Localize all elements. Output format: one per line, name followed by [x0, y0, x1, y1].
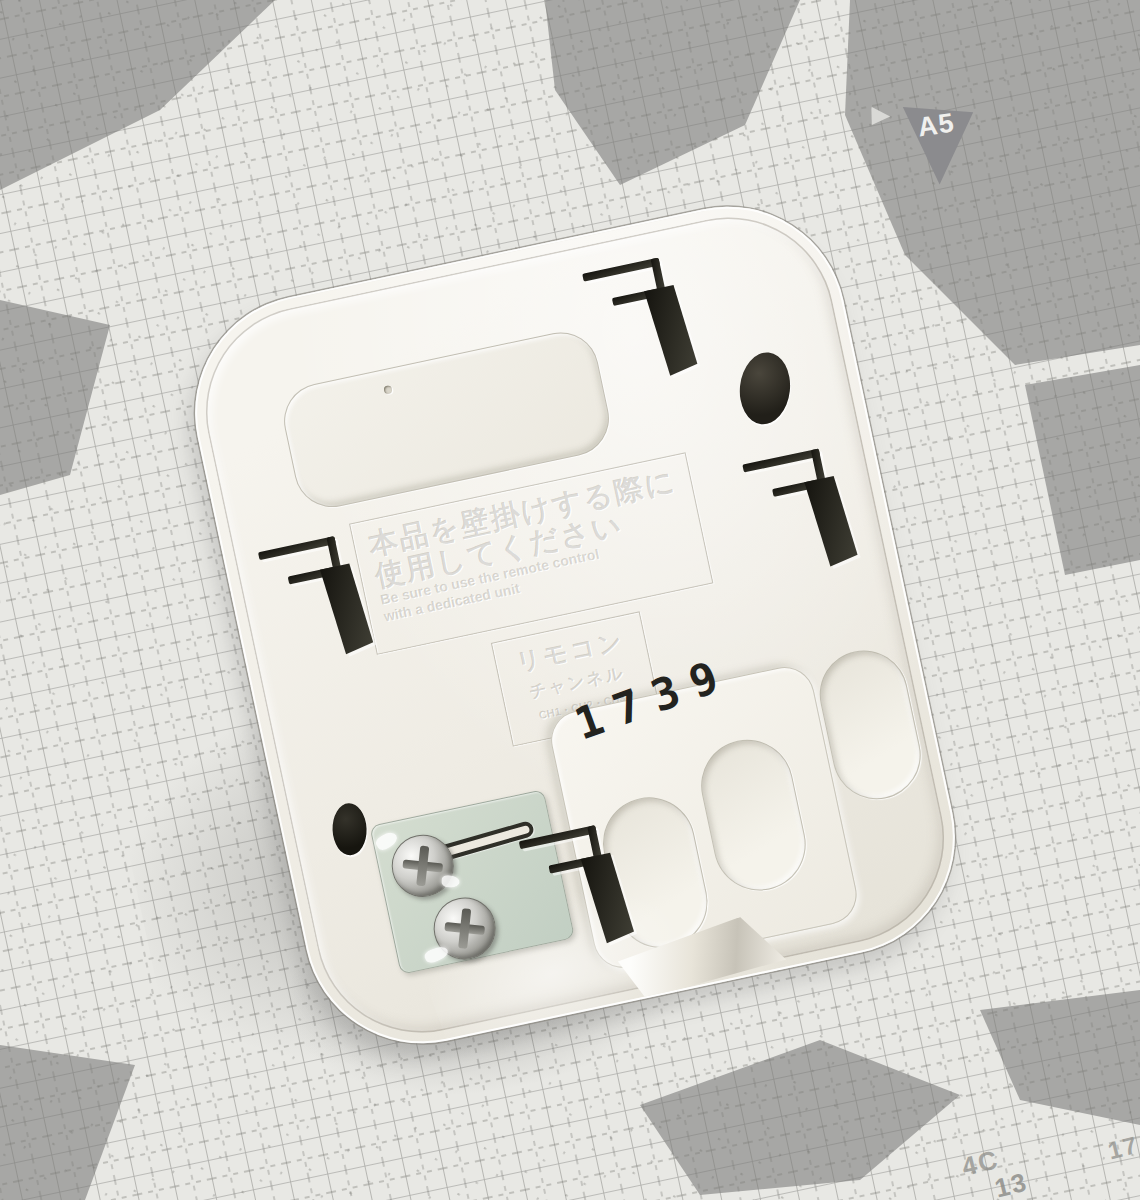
oval-hole-top-right — [736, 350, 793, 427]
photo-scene: A5 4C 13 17 本品を壁掛けする際に 使用してください Be sure … — [0, 0, 1140, 1200]
mat-size-marker-label: A5 — [916, 108, 956, 144]
pin-hole — [383, 385, 392, 394]
oval-hole-left — [332, 803, 368, 856]
metal-glint — [441, 875, 460, 888]
phillips-screw-upper — [386, 829, 460, 903]
pill-recess-middle — [693, 731, 815, 899]
metal-glint — [423, 944, 450, 965]
mounting-hook-cutout-right — [738, 438, 868, 587]
